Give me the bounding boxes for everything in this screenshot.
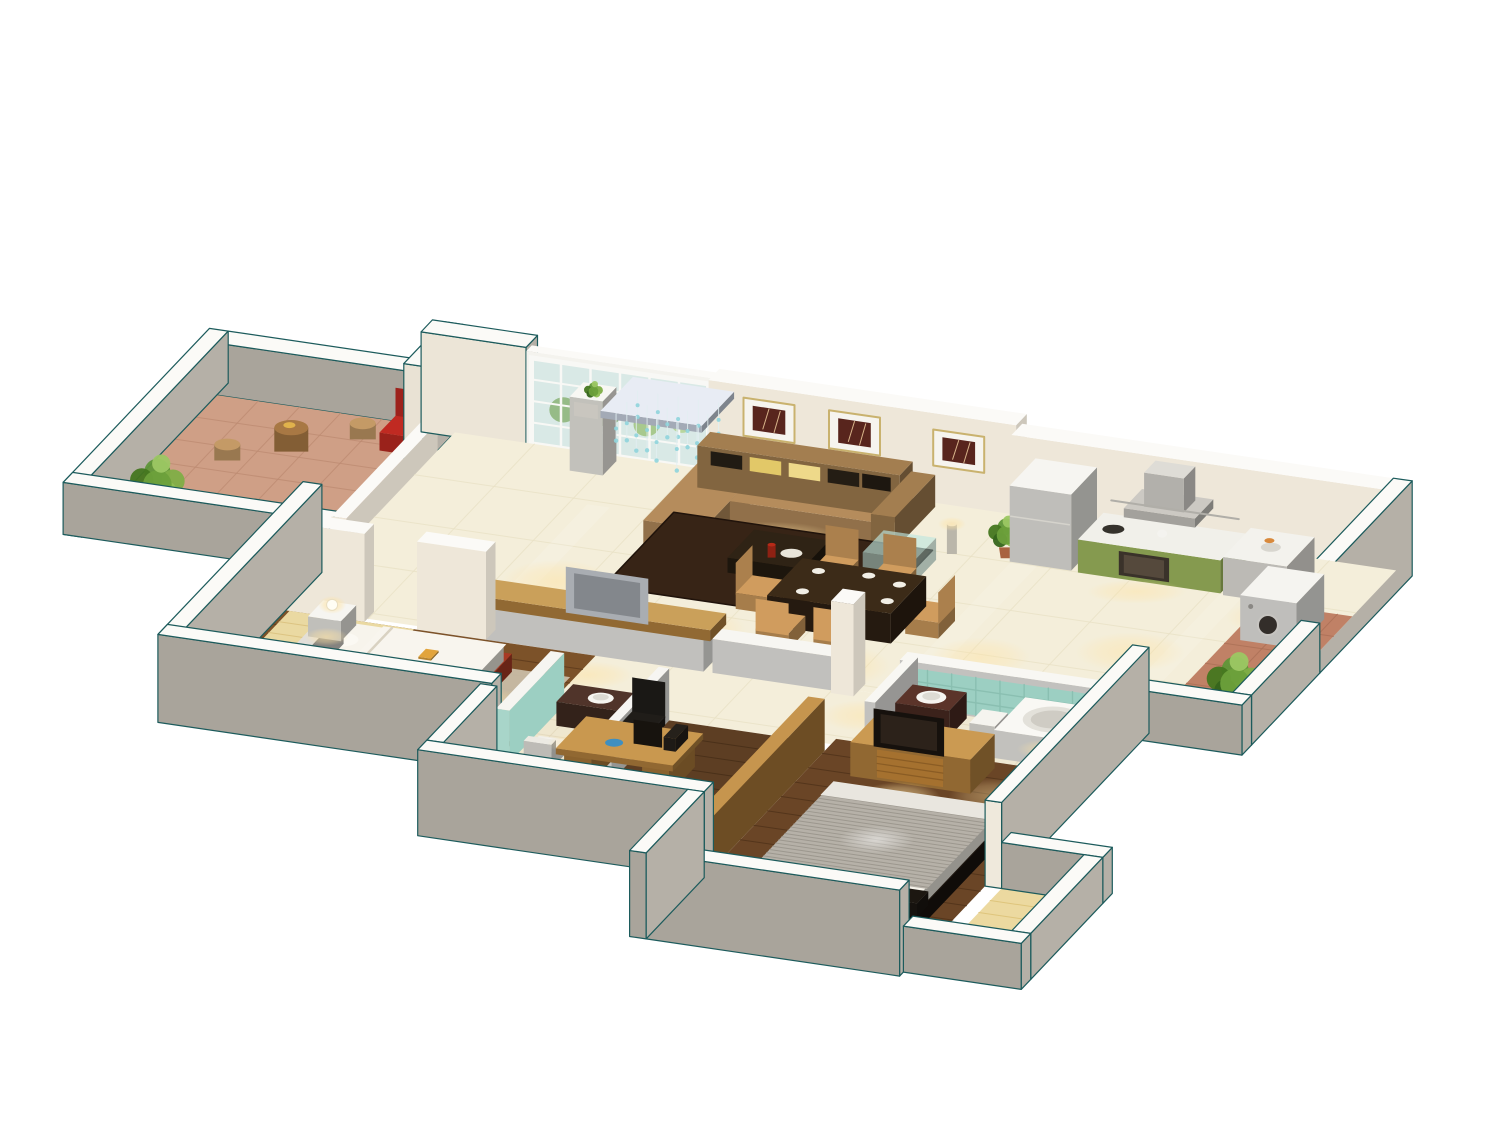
bath1-basin-inner — [593, 694, 609, 700]
sink-bowl — [1264, 538, 1274, 543]
lamp-north-glow — [304, 628, 348, 646]
washer-door — [1258, 615, 1278, 635]
sink-basin — [1261, 543, 1281, 552]
wicker-chair-2 — [214, 439, 240, 461]
dinner-plate-1 — [812, 568, 825, 574]
master-bed-glow — [838, 826, 914, 854]
north-wall-west — [421, 320, 537, 448]
dinner-plate-2 — [862, 573, 875, 579]
wall-art-3 — [933, 430, 984, 473]
floor-plan-page — [0, 0, 1500, 1125]
wall-art-2 — [829, 410, 880, 455]
dinner-plate-6 — [881, 598, 894, 604]
bedroom1-north-wall-east — [417, 532, 496, 640]
kitchen-counter-glow — [1087, 580, 1187, 604]
table-items — [283, 422, 295, 428]
washer-controls — [1248, 604, 1253, 609]
cooktop — [1102, 525, 1124, 534]
wicker-chair-1 — [350, 418, 376, 440]
lamp-north — [318, 596, 346, 614]
scene-root — [63, 320, 1412, 990]
wall-art-1 — [744, 398, 795, 444]
dinner-plate-3 — [893, 582, 906, 588]
monitor — [634, 720, 663, 748]
range-hood-chimney — [1144, 461, 1195, 513]
kettle — [1157, 530, 1167, 538]
red-vase — [768, 543, 776, 558]
vessel-basin-inner — [922, 692, 940, 700]
serving-tray — [780, 549, 802, 558]
floor-lamp-glow — [938, 517, 966, 531]
hall-pillar — [831, 589, 865, 697]
mousepad — [605, 739, 623, 747]
dinner-plate-4 — [796, 588, 809, 594]
floor-plan-render — [0, 0, 1500, 1125]
